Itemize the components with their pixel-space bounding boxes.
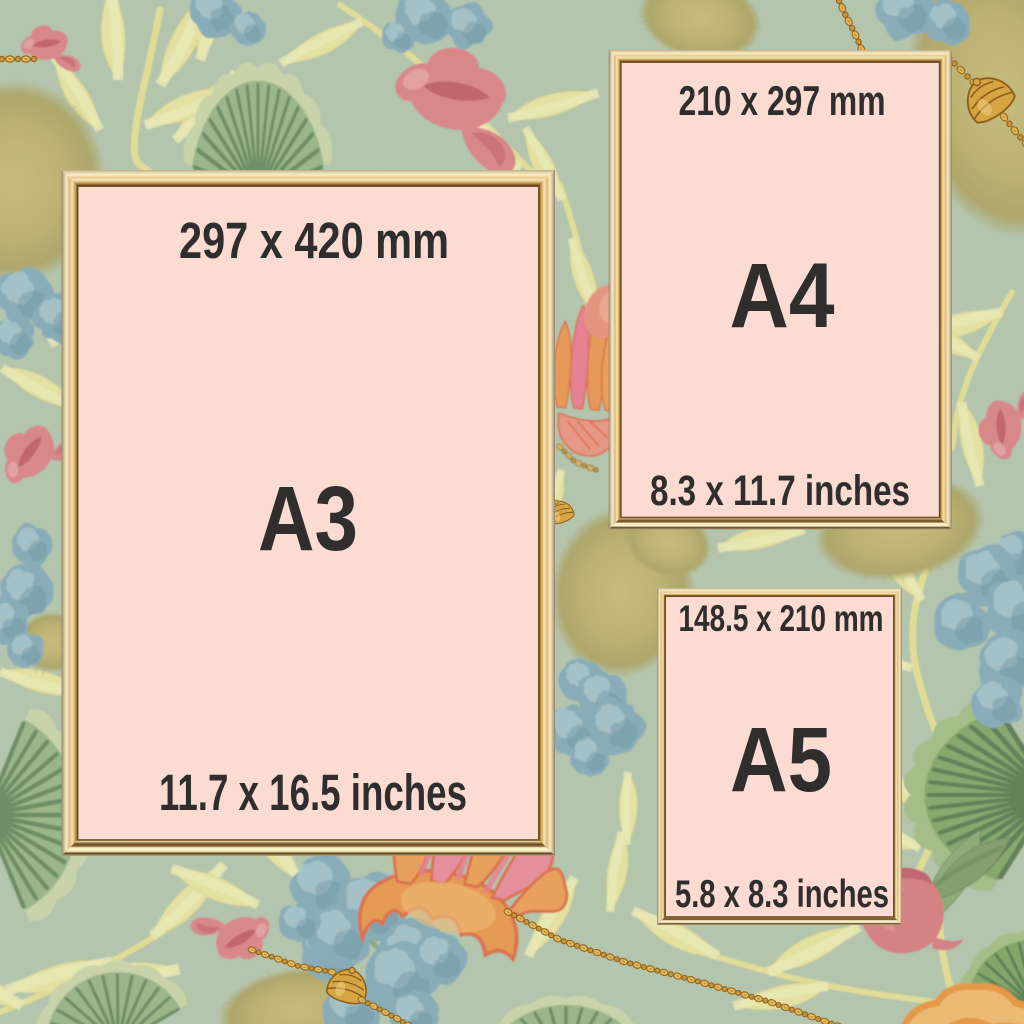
svg-text:148.5 x 210 mm: 148.5 x 210 mm (679, 598, 884, 639)
svg-text:5.8 x 8.3 inches: 5.8 x 8.3 inches (675, 873, 889, 916)
svg-text:A5: A5 (730, 709, 832, 811)
svg-text:297 x 420 mm: 297 x 420 mm (179, 212, 449, 269)
svg-text:11.7 x 16.5 inches: 11.7 x 16.5 inches (159, 764, 467, 821)
svg-text:A3: A3 (258, 468, 358, 570)
svg-text:A4: A4 (730, 245, 835, 347)
svg-text:210 x 297 mm: 210 x 297 mm (679, 77, 886, 124)
svg-text:8.3 x 11.7 inches: 8.3 x 11.7 inches (650, 467, 910, 515)
